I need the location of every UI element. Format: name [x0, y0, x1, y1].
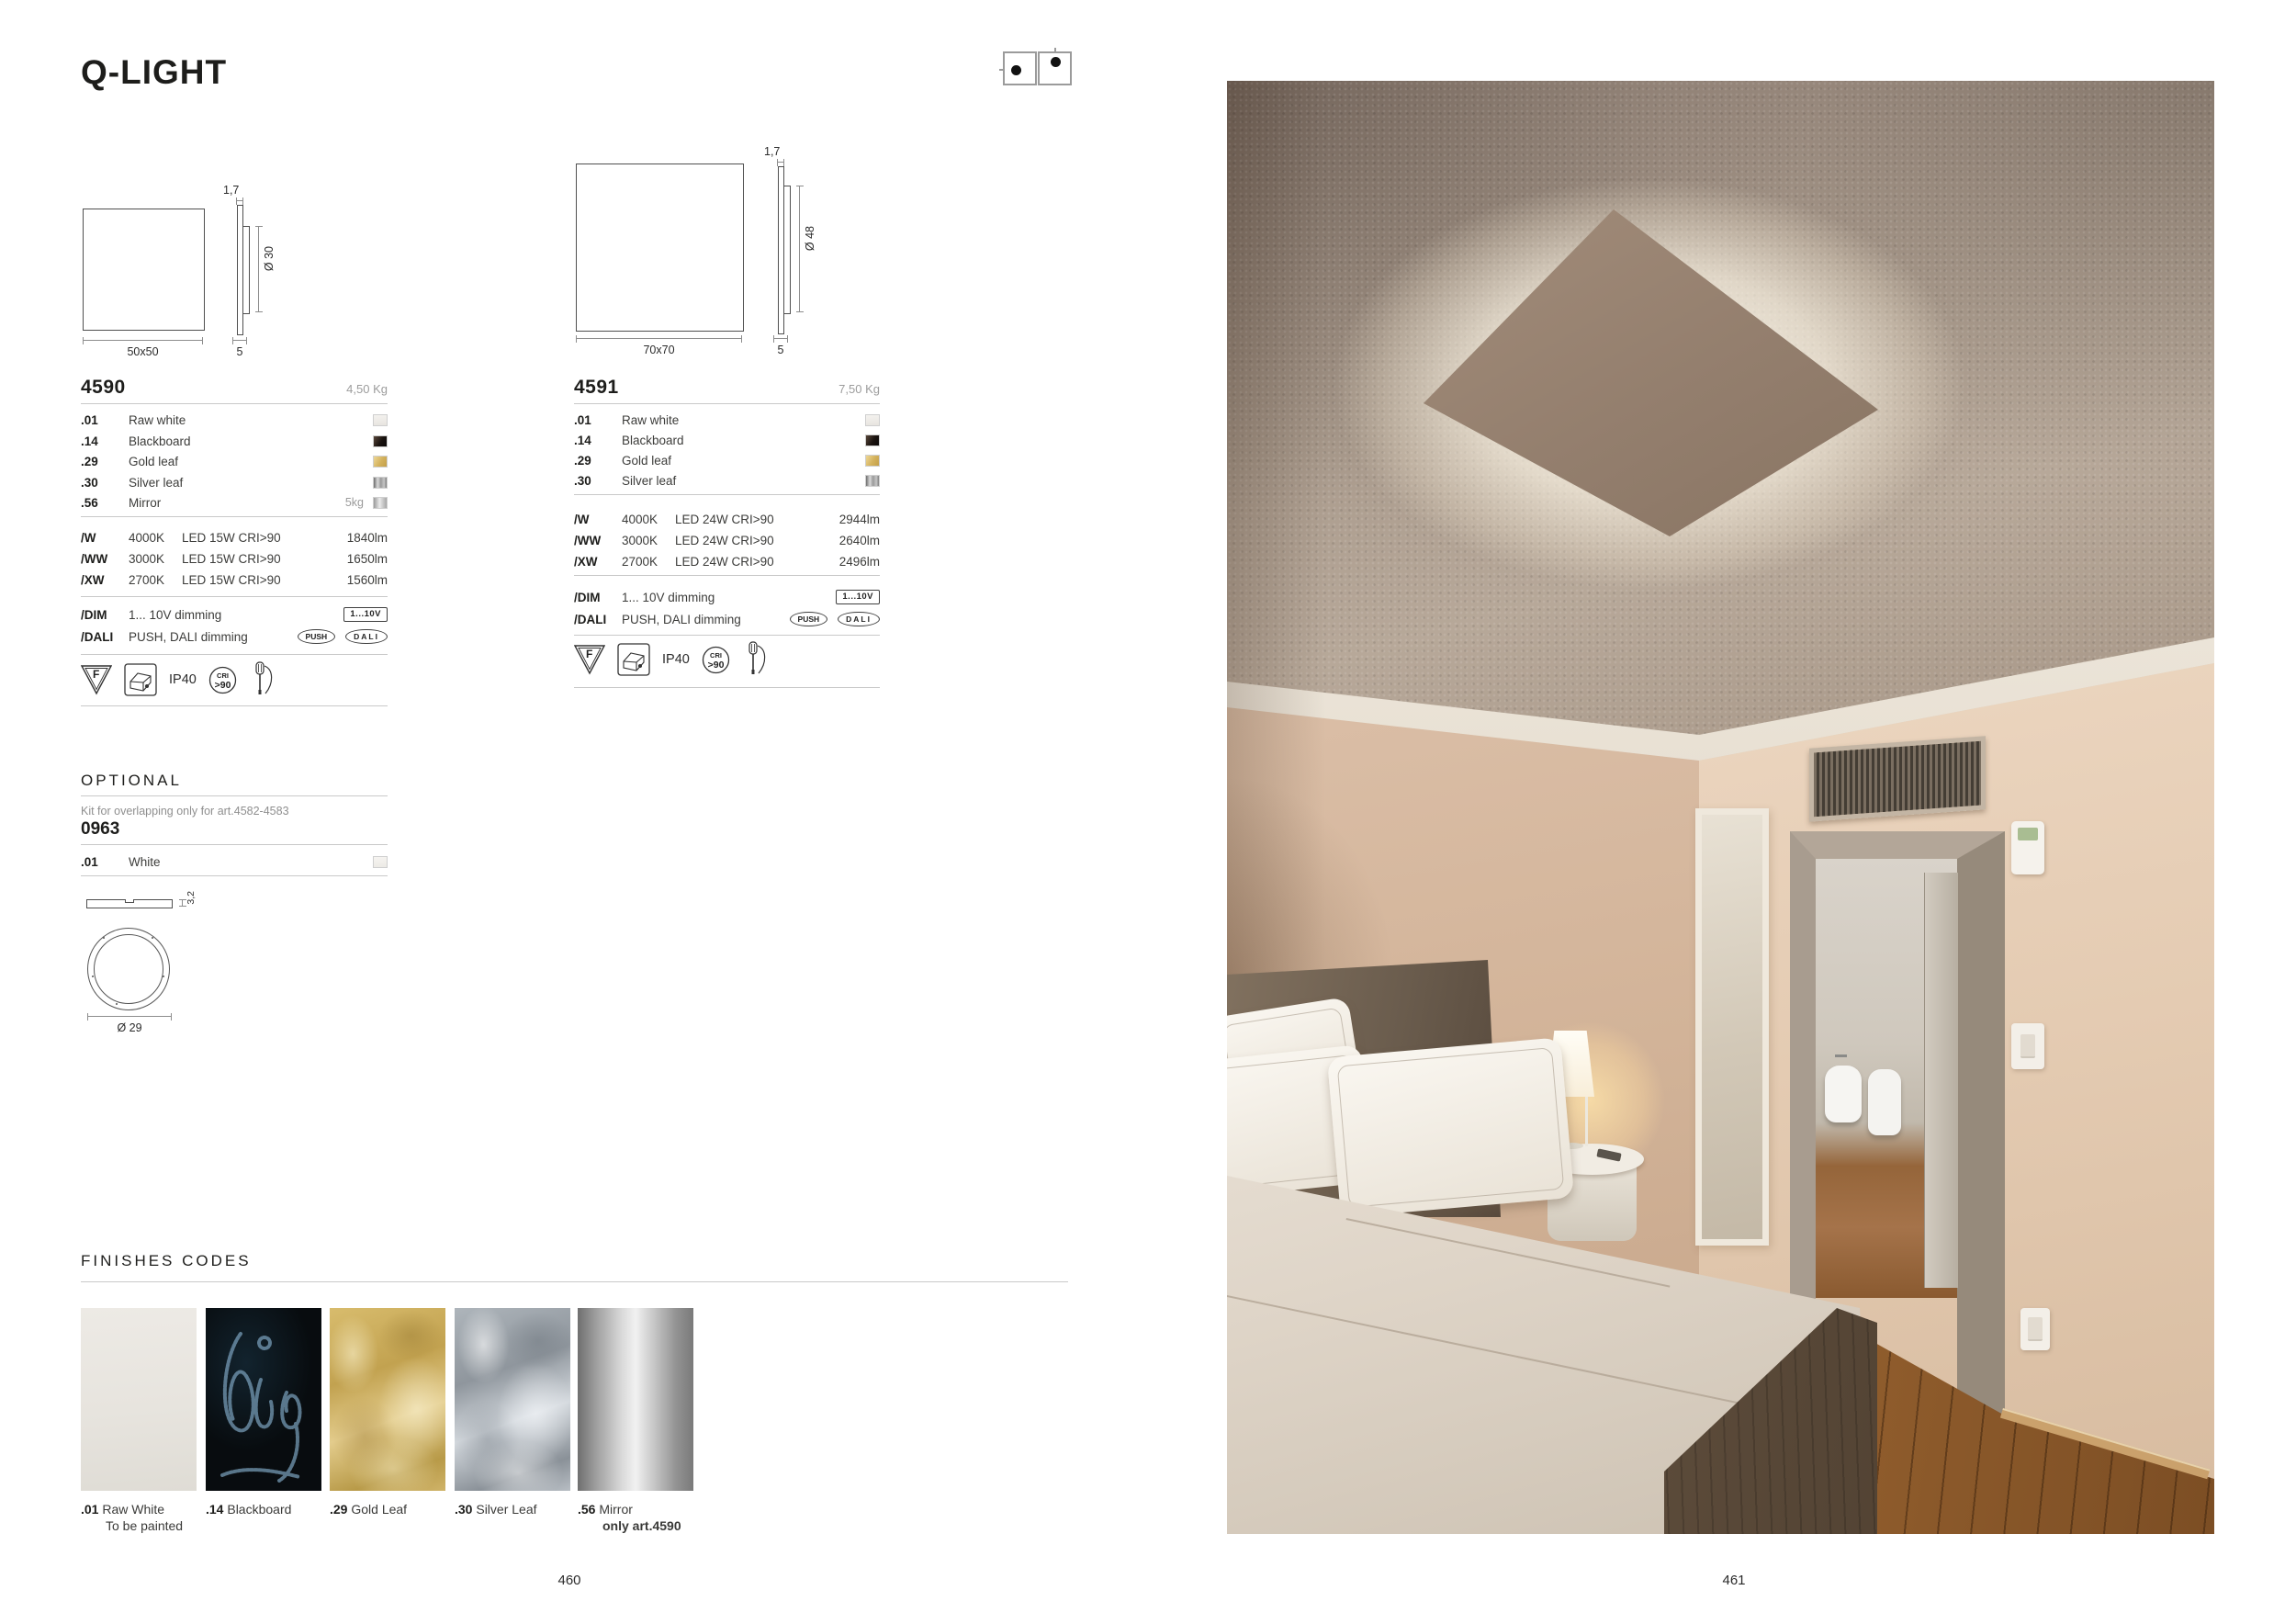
finish-code: .14 [574, 434, 622, 447]
finish-code: .14 [81, 434, 129, 448]
depth-label: 5 [232, 345, 247, 358]
finish-sample-name: Silver Leaf [476, 1502, 536, 1517]
class-f-icon: F [81, 664, 112, 695]
led-temp: 3000K [129, 552, 182, 566]
led-row: /WW 3000K LED 15W CRI>90 1650lm [81, 549, 388, 568]
finish-swatch-blackboard [865, 434, 880, 446]
svg-text:CRI: CRI [217, 671, 229, 680]
dimming-code: /DIM [81, 608, 129, 622]
finish-sample-name: Blackboard [227, 1502, 291, 1517]
finish-swatch-raw-white [865, 414, 880, 426]
svg-text:F: F [586, 648, 592, 660]
svg-text:CRI: CRI [710, 651, 722, 660]
wall-mount-dot [1011, 65, 1021, 75]
optional-section: OPTIONAL Kit for overlapping only for ar… [81, 772, 388, 1066]
finish-swatch-silver-leaf [865, 475, 880, 487]
finish-sample-silver-leaf [455, 1308, 570, 1491]
finish-texture [206, 1308, 321, 1491]
cert-icons-row: F IP40 CRI >90 [574, 641, 768, 678]
finish-sample-code: .14 [206, 1502, 223, 1517]
finish-label: Raw white [622, 413, 865, 427]
ceiling-mount-tick [1054, 48, 1056, 53]
finish-label: Raw white [129, 413, 373, 427]
product-weight: 4,50 Kg [346, 382, 388, 396]
dimming-code: /DALI [574, 613, 622, 626]
dimming-row: /DIM 1... 10V dimming 1...10V [574, 588, 880, 606]
side-view-body [242, 226, 250, 314]
page-number-right: 461 [1693, 1573, 1775, 1588]
finish-row: .30 Silver leaf [81, 473, 388, 491]
divider [81, 654, 388, 655]
cri-icon: CRI >90 [208, 666, 237, 694]
divider [574, 635, 880, 636]
badge-push: PUSH [790, 612, 828, 627]
svg-text:>90: >90 [707, 660, 724, 671]
finish-label: Gold leaf [129, 455, 373, 468]
thickness-dim-line [777, 162, 784, 163]
finish-sample-gold-leaf [330, 1308, 445, 1491]
led-code: /XW [574, 555, 622, 569]
finish-row: .29 Gold leaf [81, 452, 388, 470]
divider [81, 1281, 1068, 1282]
finish-code: .01 [81, 855, 129, 869]
finish-label: Blackboard [622, 434, 865, 447]
finish-row: .30 Silver leaf [574, 471, 880, 490]
led-code: /W [574, 513, 622, 526]
finishes-codes-heading: FINISHES CODES [81, 1252, 252, 1270]
page-number-left: 460 [528, 1573, 611, 1588]
led-row: /W 4000K LED 15W CRI>90 1840lm [81, 528, 388, 547]
divider [81, 795, 388, 796]
depth-label: 5 [773, 344, 788, 356]
finish-sample-code: .56 [578, 1502, 595, 1517]
side-view-body [783, 186, 791, 314]
ring-diameter-dim [87, 1016, 172, 1017]
finish-code: .29 [81, 455, 129, 468]
remote-driver-icon [124, 663, 157, 696]
front-size-label: 50x50 [83, 345, 203, 358]
finish-note: 5kg [345, 496, 364, 509]
led-row: /XW 2700K LED 24W CRI>90 2496lm [574, 552, 880, 570]
optional-code: 0963 [81, 819, 119, 840]
finish-row: .14 Blackboard [574, 431, 880, 449]
divider [81, 844, 388, 845]
finish-label: Mirror [129, 496, 345, 510]
badge-1-10v: 1...10V [836, 590, 880, 604]
diameter-label: Ø 48 [804, 226, 816, 251]
thickness-label: 1,7 [223, 184, 239, 197]
led-lumen: 2496lm [816, 555, 880, 569]
finish-row: .01 Raw white [81, 411, 388, 429]
led-temp: 2700K [129, 573, 182, 587]
product-code: 4591 [574, 377, 619, 399]
dimming-row: /DIM 1... 10V dimming 1...10V [81, 605, 388, 624]
finish-sample-name: Mirror [599, 1502, 633, 1517]
finish-row: .01 Raw white [574, 411, 880, 429]
screwdriver-icon [249, 661, 275, 698]
room-photo [1227, 81, 2214, 1534]
finish-code: .01 [574, 413, 622, 427]
ring-screw [116, 1003, 118, 1005]
width-dim-line [83, 340, 203, 341]
badge-dali: DALI [345, 629, 388, 645]
dimming-code: /DALI [81, 630, 129, 644]
divider [81, 596, 388, 597]
led-code: /XW [81, 573, 129, 587]
finish-sample-label: .30 Silver Leaf [455, 1502, 537, 1517]
finish-texture [578, 1308, 693, 1491]
led-temp: 4000K [622, 513, 675, 526]
led-temp: 4000K [129, 531, 182, 545]
svg-text:F: F [93, 668, 99, 681]
finishes-codes-section: FINISHES CODES .01 Raw Whi [81, 1252, 1068, 1555]
finish-label: Silver leaf [622, 474, 865, 488]
optional-note: Kit for overlapping only for art.4582-45… [81, 805, 289, 818]
ring-diameter-label: Ø 29 [87, 1021, 172, 1034]
product-code: 4590 [81, 377, 126, 399]
wall-mount-icon [1003, 51, 1037, 85]
dimming-row: /DALI PUSH, DALI dimming PUSH DALI [81, 627, 388, 646]
svg-text:>90: >90 [214, 680, 231, 691]
finish-sample-sublabel: only art.4590 [602, 1518, 681, 1533]
finish-swatch-white [373, 856, 388, 868]
finish-label: White [129, 855, 373, 869]
divider [81, 516, 388, 517]
finish-swatch-gold-leaf [373, 456, 388, 468]
finish-code: .56 [81, 496, 129, 510]
ring-screw [103, 937, 105, 939]
ceiling-mount-dot [1051, 57, 1061, 67]
divider [574, 687, 880, 688]
finish-sample-code: .29 [330, 1502, 347, 1517]
finish-sample-blackboard [206, 1308, 321, 1491]
chalk-writing [206, 1308, 321, 1491]
led-lumen: 2944lm [816, 513, 880, 526]
thickness-dim-line [236, 200, 243, 201]
finish-sample-code: .30 [455, 1502, 472, 1517]
product-header: 4591 7,50 Kg [574, 377, 880, 399]
led-lumen: 2640lm [816, 534, 880, 547]
finish-code: .29 [574, 454, 622, 468]
led-spec: LED 15W CRI>90 [182, 573, 323, 587]
led-temp: 2700K [622, 555, 675, 569]
width-dim-line [576, 338, 742, 339]
badge-dali: DALI [838, 612, 880, 627]
finish-swatch-blackboard [373, 435, 388, 447]
finish-code: .01 [81, 413, 129, 427]
wall-mount-tick [999, 69, 1005, 71]
thickness-label: 1,7 [764, 145, 780, 158]
badge-push: PUSH [298, 629, 336, 645]
front-view-drawing [83, 209, 205, 331]
front-size-label: 70x70 [576, 344, 742, 356]
led-lumen: 1840lm [323, 531, 388, 545]
finish-sample-name: Raw White [102, 1502, 164, 1517]
led-code: /W [81, 531, 129, 545]
divider [574, 494, 880, 495]
diameter-dim-line [258, 226, 259, 312]
finish-sample-mirror [578, 1308, 693, 1491]
led-code: /WW [81, 552, 129, 566]
diameter-dim-line [799, 186, 800, 312]
divider [81, 403, 388, 404]
ring-profile-notch [125, 899, 134, 903]
ceiling-mount-icon [1038, 51, 1072, 85]
divider [81, 705, 388, 706]
finish-sample-label: .29 Gold Leaf [330, 1502, 407, 1517]
cert-icons-row: F IP40 CRI >90 [81, 661, 275, 698]
divider [81, 875, 388, 876]
finish-sample-label: .14 Blackboard [206, 1502, 291, 1517]
finish-swatch-raw-white [373, 414, 388, 426]
finish-row: .56 Mirror 5kg [81, 493, 388, 512]
product-header: 4590 4,50 Kg [81, 377, 388, 399]
led-spec: LED 15W CRI>90 [182, 552, 323, 566]
screwdriver-icon [742, 641, 768, 678]
depth-dim-line [232, 340, 247, 341]
dimming-code: /DIM [574, 591, 622, 604]
led-temp: 3000K [622, 534, 675, 547]
finish-code: .30 [574, 474, 622, 488]
divider [574, 575, 880, 576]
led-spec: LED 15W CRI>90 [182, 531, 323, 545]
finish-texture [81, 1308, 197, 1491]
led-spec: LED 24W CRI>90 [675, 534, 816, 547]
remote-driver-icon [617, 643, 650, 676]
dimming-row: /DALI PUSH, DALI dimming PUSH DALI [574, 610, 880, 628]
diameter-label: Ø 30 [263, 246, 276, 271]
finish-texture [330, 1308, 445, 1491]
finish-sample-label: .56 Mirror [578, 1502, 633, 1517]
lamp-stem [1585, 1091, 1588, 1146]
front-view-drawing [576, 164, 744, 332]
ip-rating-label: IP40 [662, 652, 690, 667]
optional-heading: OPTIONAL [81, 772, 182, 790]
ring-screw [152, 937, 153, 939]
led-lumen: 1560lm [323, 573, 388, 587]
divider [574, 403, 880, 404]
finish-row: .01 White [81, 852, 388, 871]
finish-swatch-gold-leaf [865, 455, 880, 467]
depth-dim-line [773, 338, 788, 339]
ring-inner [94, 934, 163, 1004]
pillow [1327, 1037, 1574, 1218]
finish-swatch-mirror [373, 497, 388, 509]
led-spec: LED 24W CRI>90 [675, 513, 816, 526]
finish-sample-code: .01 [81, 1502, 98, 1517]
finish-label: Gold leaf [622, 454, 865, 468]
product-column-4591: 70x70 1,7 Ø 48 5 4591 7,50 Kg .01 Raw wh… [574, 0, 880, 1102]
finish-sample-raw-white [81, 1308, 197, 1491]
led-code: /WW [574, 534, 622, 547]
class-f-icon: F [574, 644, 605, 675]
led-row: /XW 2700K LED 15W CRI>90 1560lm [81, 570, 388, 589]
finish-sample-name: Gold Leaf [351, 1502, 407, 1517]
led-row: /W 4000K LED 24W CRI>90 2944lm [574, 510, 880, 528]
ring-thickness-label: 3,2 [186, 891, 197, 905]
ip-rating-label: IP40 [169, 672, 197, 687]
finish-row: .29 Gold leaf [574, 451, 880, 469]
cri-icon: CRI >90 [702, 646, 730, 674]
finish-label: Blackboard [129, 434, 373, 448]
finish-texture [455, 1308, 570, 1491]
ring-thickness-dim [182, 899, 183, 907]
product-weight: 7,50 Kg [838, 382, 880, 396]
finish-label: Silver leaf [129, 476, 373, 490]
ring-screw [163, 976, 164, 977]
badge-1-10v: 1...10V [343, 607, 388, 622]
finish-sample-sublabel: To be painted [106, 1518, 183, 1533]
ring-screw [92, 976, 94, 977]
led-lumen: 1650lm [323, 552, 388, 566]
finish-sample-label: .01 Raw White [81, 1502, 164, 1517]
led-row: /WW 3000K LED 24W CRI>90 2640lm [574, 531, 880, 549]
finish-code: .30 [81, 476, 129, 490]
finish-swatch-silver-leaf [373, 477, 388, 489]
led-spec: LED 24W CRI>90 [675, 555, 816, 569]
finish-row: .14 Blackboard [81, 432, 388, 450]
